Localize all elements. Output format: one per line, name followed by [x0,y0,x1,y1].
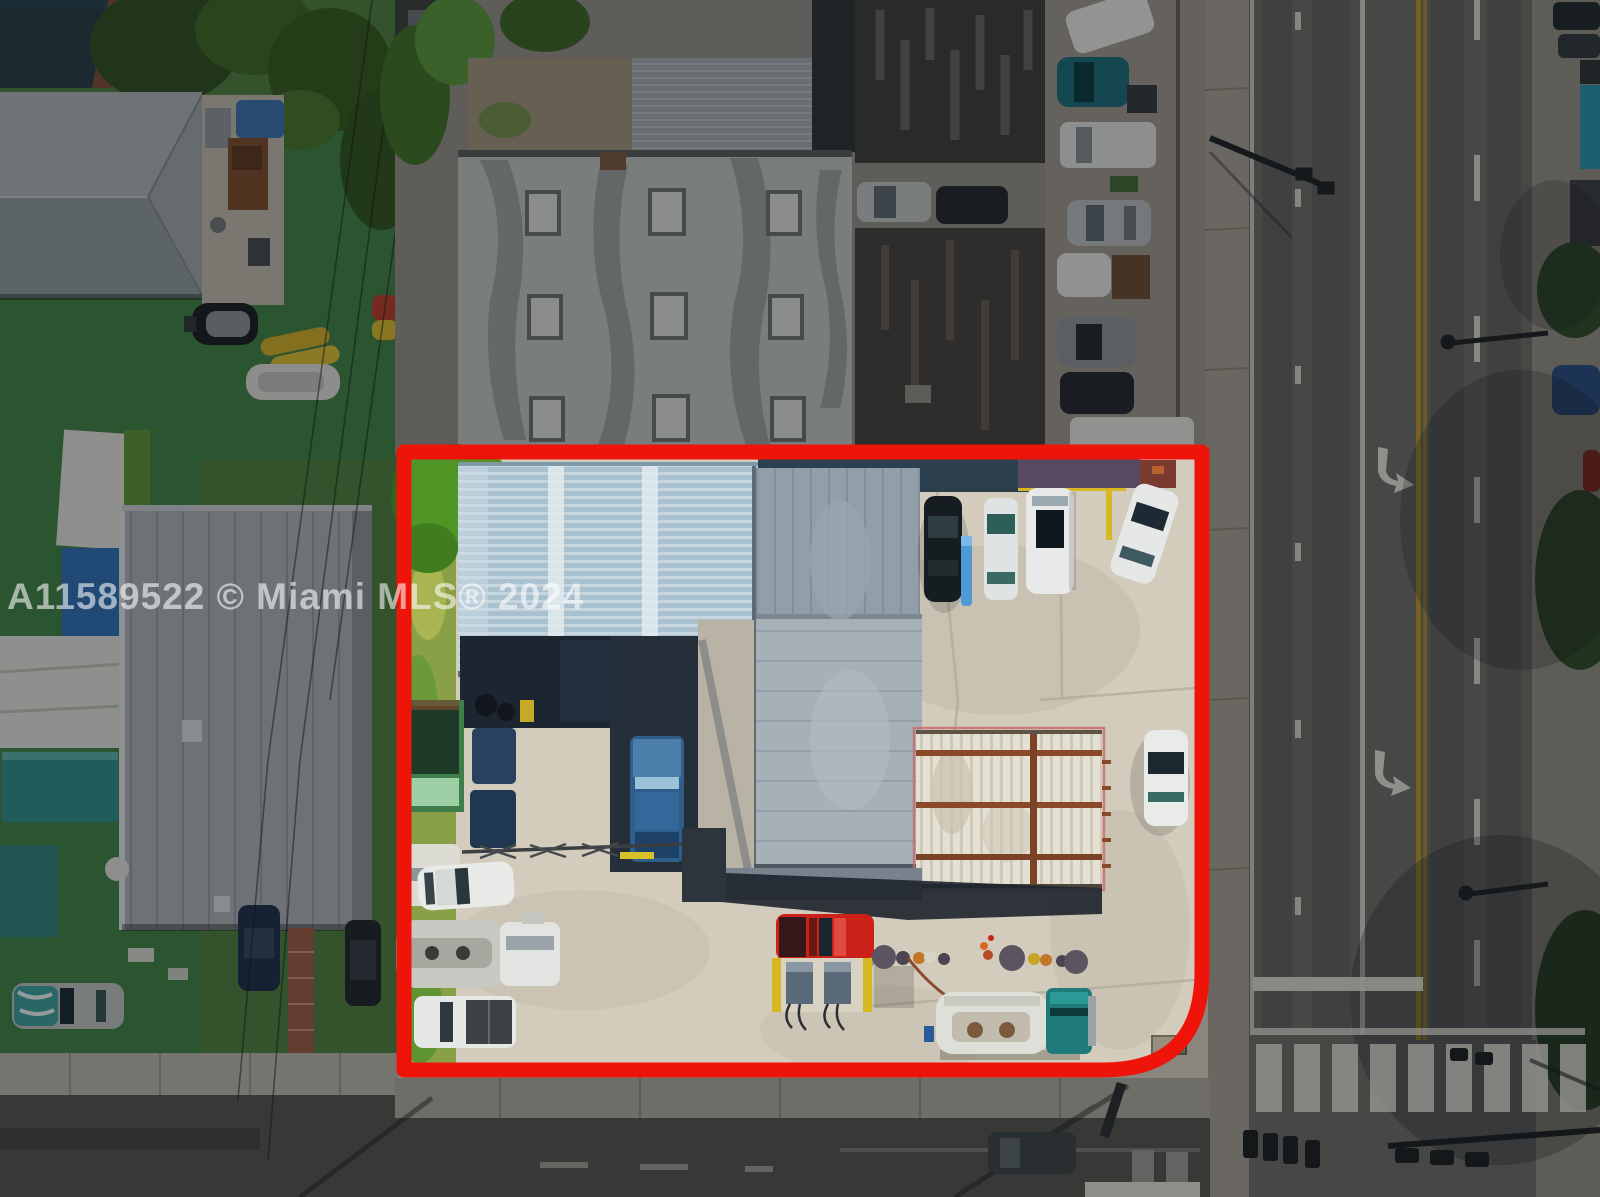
blue-barrel [924,1026,934,1042]
open-canopy-framework [914,728,1111,890]
grey-flat-roofs [752,466,922,874]
yellow-bollard [772,958,781,1012]
white-pickup [414,996,516,1048]
yellow-bollard [863,958,872,1012]
mls-watermark: A11589522 © Miami MLS® 2024 [7,576,584,618]
aerial-photo: A11589522 © Miami MLS® 2024 [0,0,1600,1197]
forklift-bit [520,700,534,722]
dark-wall [682,828,726,902]
sunroof [1036,510,1064,548]
purple-tarp [1018,458,1140,488]
blue-bin [472,728,516,784]
blue-bin [470,790,516,848]
yellow-marking [620,852,654,859]
subject-property [391,444,1208,1078]
white-suv [1026,488,1076,594]
silver-tanker-truck [396,912,560,988]
white-sedan [417,861,516,912]
black-sedan [924,496,962,602]
white-teal-car [984,498,1018,600]
green-dumpster [404,700,464,812]
blue-pole [961,536,972,606]
